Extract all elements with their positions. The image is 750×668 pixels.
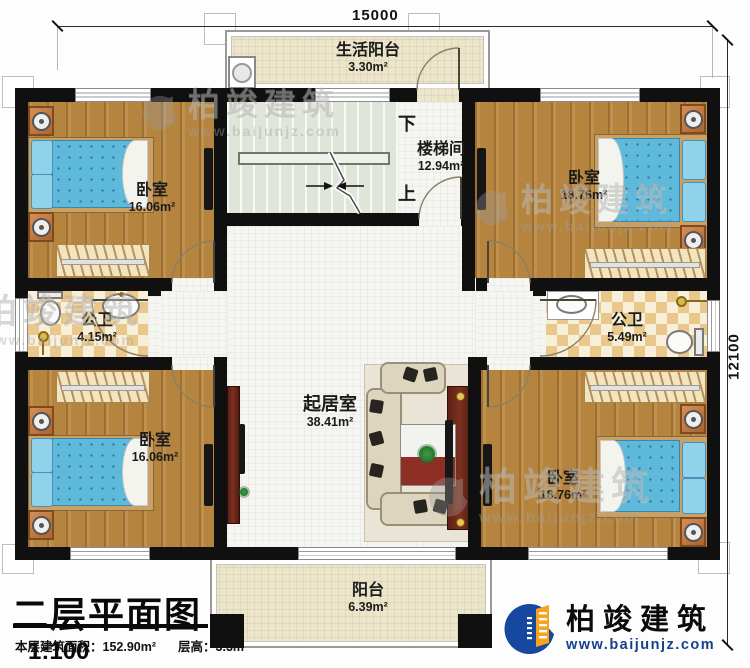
brand-website: www.baijunjz.com <box>566 638 715 653</box>
door-arc <box>488 241 530 283</box>
room-label-balcony: 阳台 6.39m² <box>348 582 388 615</box>
plan-info: 本层建筑面积：152.90m²层高：3.3m <box>15 636 266 655</box>
room-label-bedroom-br: 卧室 18.76m² <box>540 470 587 503</box>
brand-logo-icon <box>492 600 558 658</box>
door-arc <box>540 300 596 356</box>
title-block: 二层平面图1:100 本层建筑面积：152.90m²层高：3.3m <box>12 586 242 662</box>
brand-name: 柏竣建筑 <box>566 605 715 635</box>
floor-area: 本层建筑面积：152.90m² <box>15 640 156 654</box>
door-arc <box>172 365 214 407</box>
door-arc <box>419 177 461 219</box>
floor-height: 层高：3.3m <box>178 640 244 654</box>
stair-up-label: 上 <box>398 180 416 206</box>
room-label-bath-right: 公卫 5.49m² <box>607 312 647 345</box>
room-label-bedroom-bl: 卧室 16.06m² <box>132 432 179 465</box>
room-label-bedroom-tl: 卧室 16.06m² <box>129 182 176 215</box>
title-underline <box>13 624 208 628</box>
plan-title: 二层平面图 <box>12 594 202 635</box>
door-arc <box>488 365 530 407</box>
brand-logo: 柏竣建筑 www.baijunjz.com <box>492 600 715 658</box>
room-label-life-balcony: 生活阳台 3.30m² <box>336 42 400 75</box>
room-label-stairwell: 楼梯间 12.94m² <box>417 141 465 174</box>
floor-plan-page: 15000 12100 <box>0 0 750 668</box>
stair-down-label: 下 <box>398 110 416 136</box>
room-label-bath-left: 公卫 4.15m² <box>77 312 117 345</box>
door-arc <box>417 48 459 90</box>
room-label-bedroom-tr: 卧室 18.76m² <box>561 170 608 203</box>
door-arc <box>172 241 214 283</box>
room-label-living: 起居室 38.41m² <box>303 394 357 429</box>
